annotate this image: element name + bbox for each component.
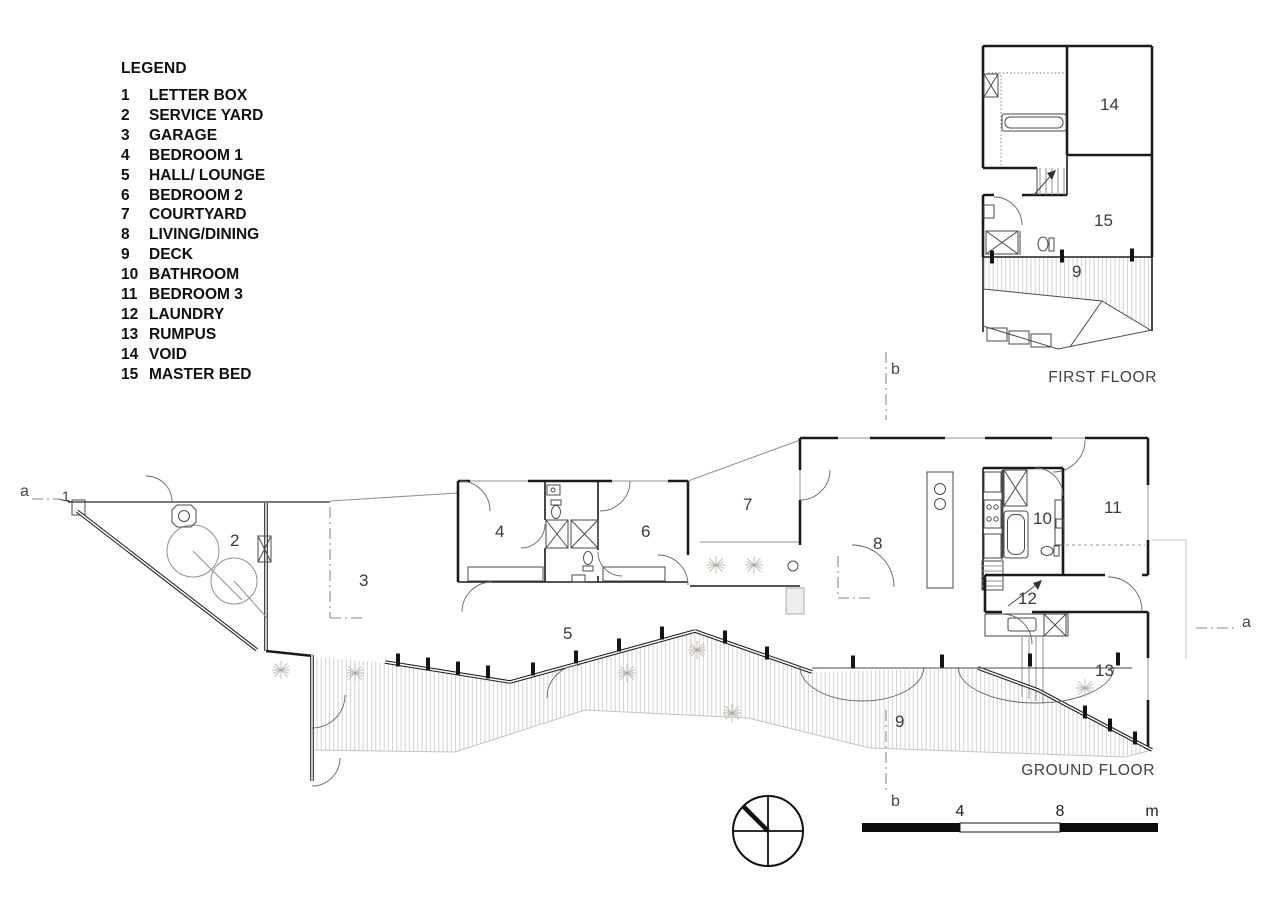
ground-floor-plan: 1 2 3 4 5 6 7 8 9 10 11 12 13 GROUND FLO…	[58, 438, 1186, 786]
room-label-10: 10	[1033, 509, 1052, 528]
toilet-icon	[551, 500, 561, 505]
first-floor-caption: FIRST FLOOR	[1048, 369, 1157, 386]
room-label-3: 3	[359, 571, 368, 590]
section-label-b: b	[891, 361, 900, 378]
first-floor-plan: 14 15 9 FIRST FLOOR	[983, 46, 1157, 386]
room-label-5: 5	[563, 624, 572, 643]
sink-icon	[935, 484, 946, 495]
plant-icon	[688, 641, 706, 659]
room-label-12: 12	[1018, 589, 1037, 608]
north-arrow-icon	[733, 796, 803, 866]
courtyard	[688, 440, 894, 614]
room-label-8: 8	[873, 534, 882, 553]
stove-icon	[984, 500, 1001, 528]
first-floor-deck	[983, 249, 1152, 350]
floor-plan-sheet: LEGEND 1LETTER BOX 2SERVICE YARD 3GARAGE…	[0, 0, 1280, 905]
room-label-13: 13	[1095, 661, 1114, 680]
room-label-9-first: 9	[1072, 262, 1081, 281]
room-label-14: 14	[1100, 95, 1119, 114]
section-label-a: a	[20, 483, 29, 500]
section-label-b: b	[891, 793, 900, 810]
scale-tick-8: 8	[1056, 803, 1065, 820]
room-label-15: 15	[1094, 211, 1113, 230]
plant-icon	[618, 664, 636, 682]
plant-icon	[745, 556, 763, 574]
scale-segment-black	[862, 823, 960, 832]
ground-floor-caption: GROUND FLOOR	[1021, 762, 1155, 779]
scale-bar: 4 8 m	[862, 803, 1159, 832]
section-marker-a-right: a	[1196, 614, 1251, 631]
room-label-2: 2	[230, 531, 239, 550]
planter-box	[1031, 334, 1051, 347]
void-railing	[988, 73, 1066, 166]
deck	[272, 627, 1152, 787]
kitchen-bathroom-block	[982, 468, 1064, 606]
kitchen-island	[927, 472, 953, 588]
room-label-11: 11	[1104, 498, 1122, 517]
pot-plant-icon	[788, 561, 798, 571]
plan-drawing: 1 2 3 4 5 6 7 8 9 10 11 12 13 GROUND FLO…	[0, 0, 1280, 905]
section-marker-a-left: a	[20, 483, 60, 500]
plant-icon	[346, 664, 364, 682]
kitchen-cabinet	[984, 472, 1001, 492]
sink-icon	[935, 499, 946, 510]
octagonal-planter-icon	[172, 505, 196, 527]
garage	[330, 507, 366, 618]
section-label-a: a	[1242, 614, 1251, 631]
plant-icon	[1076, 679, 1094, 697]
laundry-sink-icon	[1008, 618, 1036, 631]
scale-tick-4: 4	[956, 803, 965, 820]
scale-segment-black	[1060, 823, 1158, 832]
room-label-1: 1	[62, 488, 70, 504]
bedroom-block	[458, 481, 688, 612]
kitchen-cabinet	[984, 534, 1001, 558]
service-yard	[77, 476, 313, 656]
toilet-icon	[1041, 547, 1053, 556]
room-label-4: 4	[495, 522, 504, 541]
window-seat	[468, 567, 543, 581]
sink-icon	[547, 485, 560, 495]
room-label-9: 9	[895, 712, 904, 731]
stairs	[1033, 168, 1064, 196]
toilet-icon	[1038, 237, 1048, 251]
plant-icon	[707, 556, 725, 574]
section-marker-b-top: b	[886, 352, 900, 420]
toilet-icon	[584, 552, 593, 565]
plant-icon	[272, 661, 290, 679]
scale-segment-white	[960, 823, 1060, 832]
room-label-6: 6	[641, 522, 650, 541]
sink-icon	[984, 205, 994, 218]
room-label-7: 7	[743, 495, 752, 514]
scale-unit: m	[1145, 803, 1158, 820]
plant-icon	[723, 704, 741, 722]
entry-step	[786, 588, 804, 614]
bathroom-fixtures	[546, 485, 598, 582]
